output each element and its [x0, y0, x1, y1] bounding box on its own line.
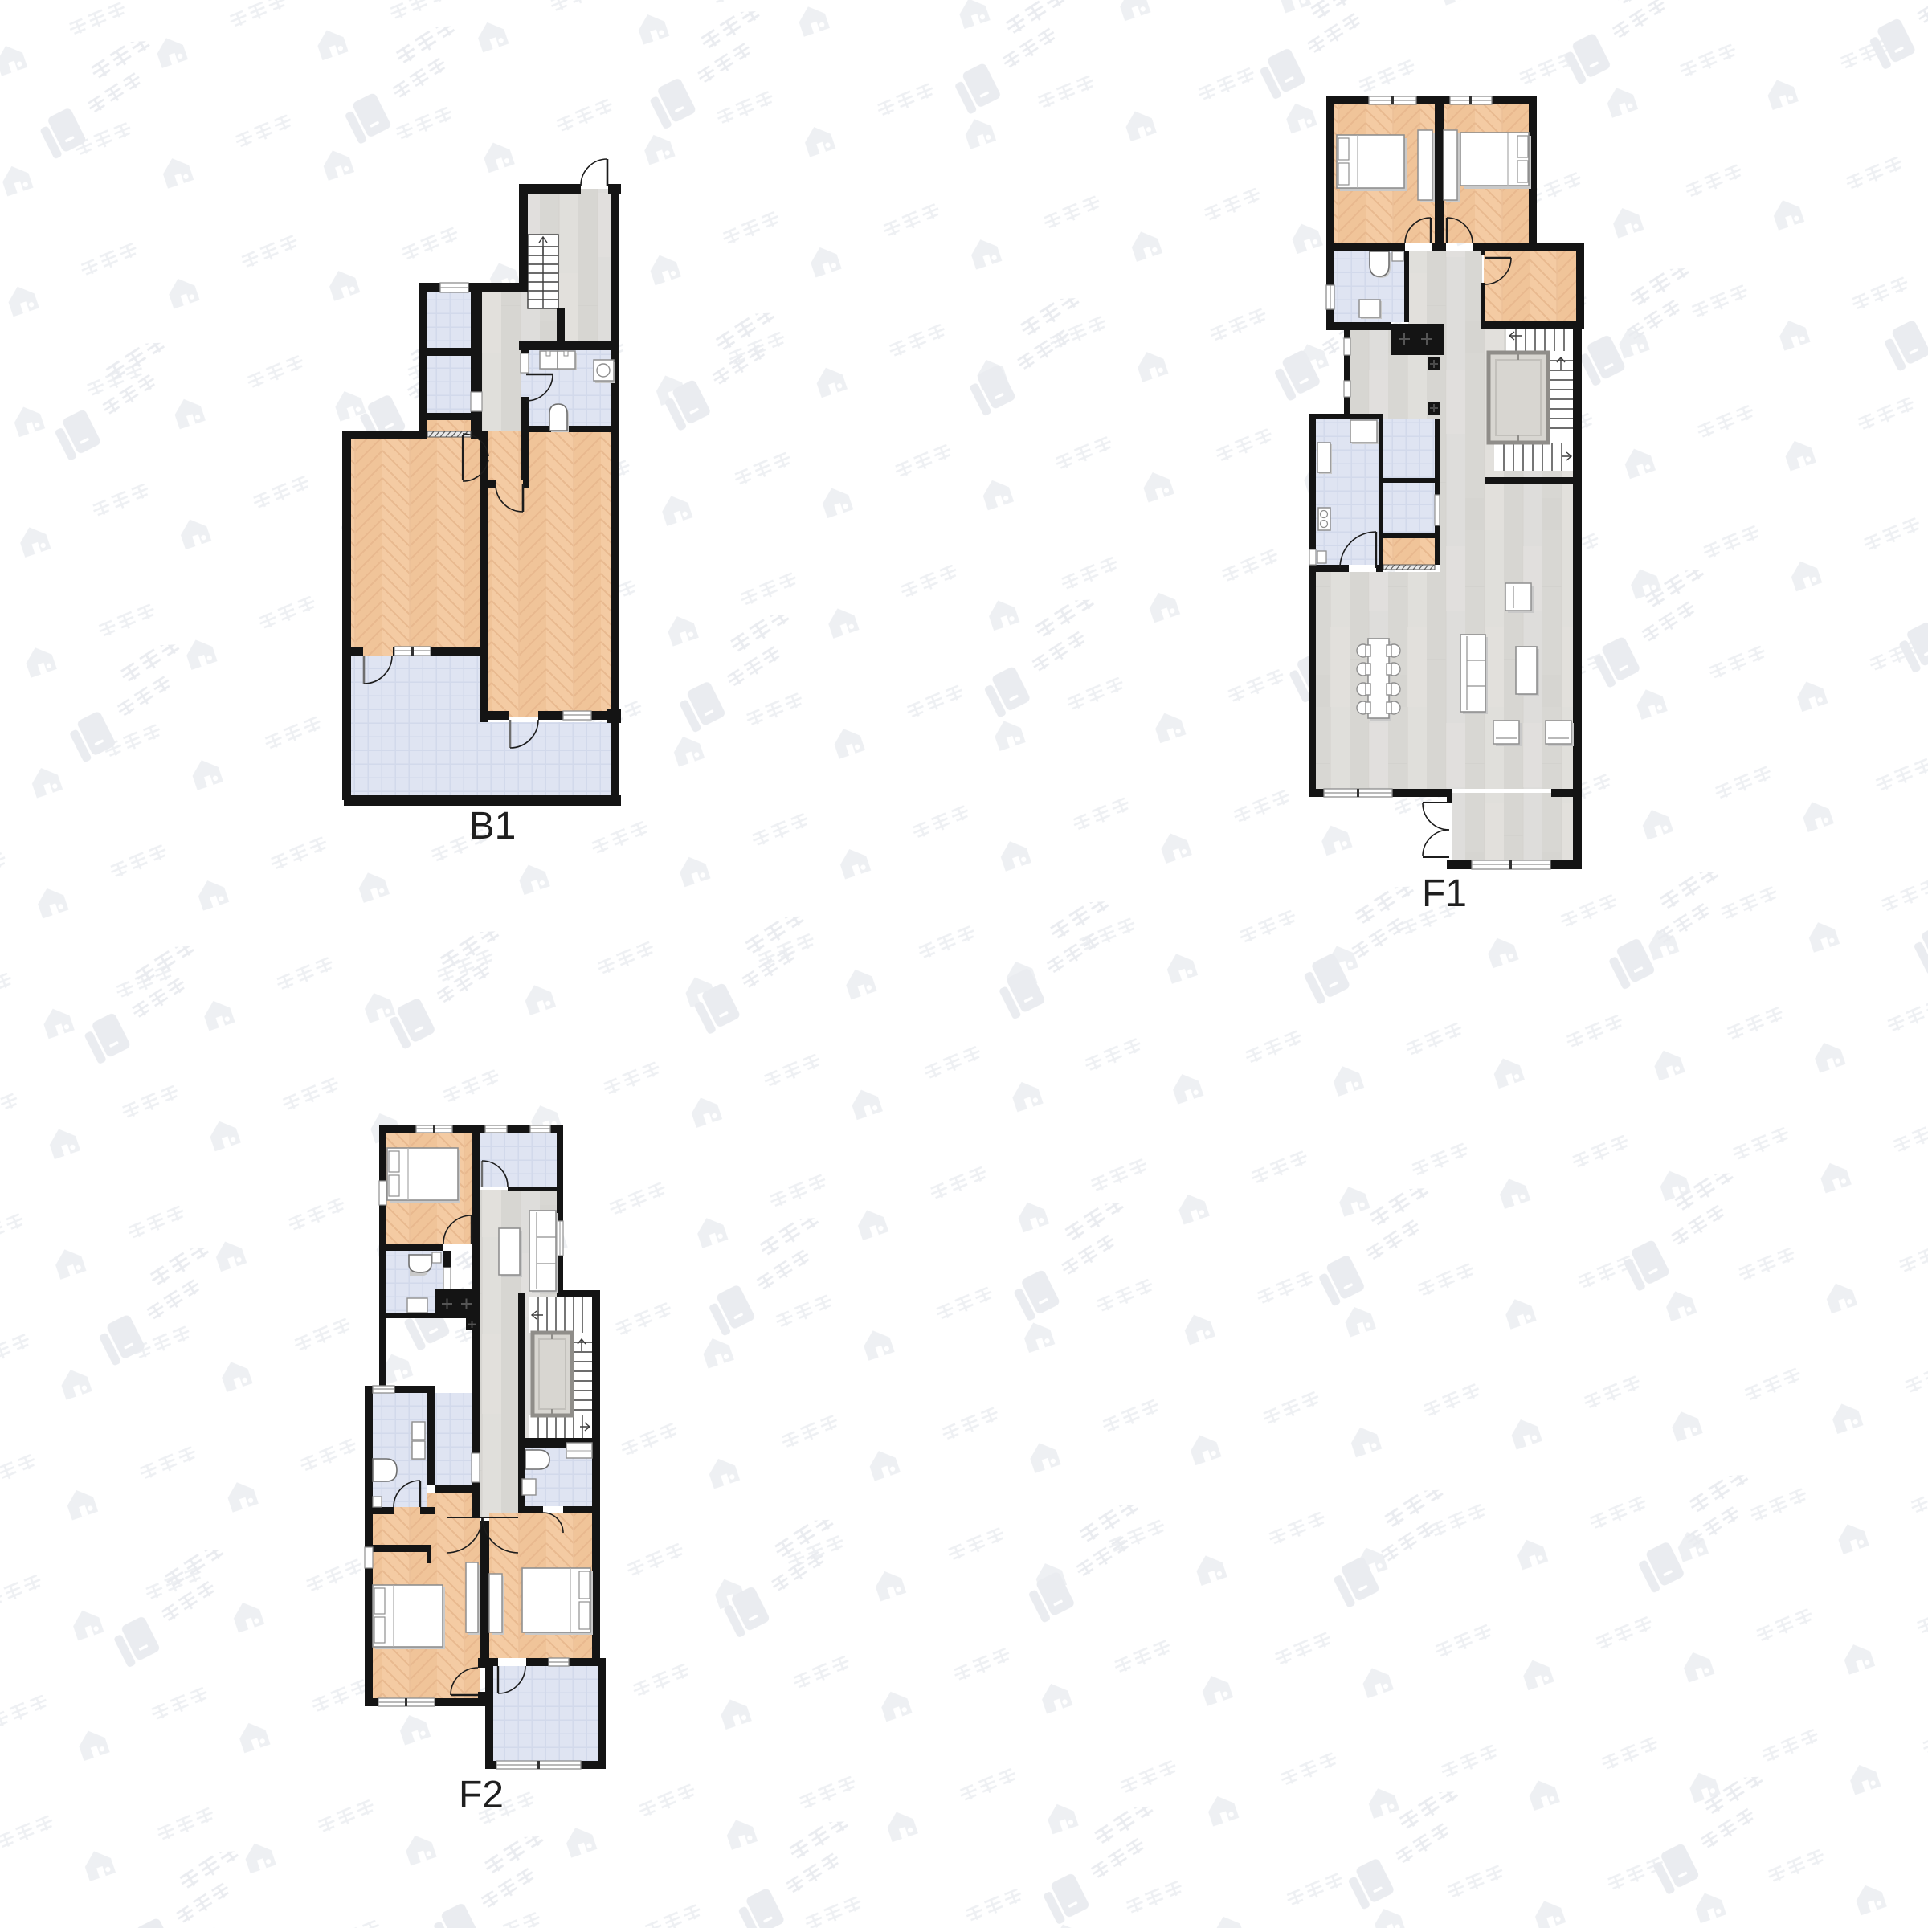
- svg-text:B1: B1: [469, 805, 517, 848]
- svg-text:F2: F2: [459, 1774, 504, 1816]
- svg-text:F1: F1: [1422, 872, 1467, 915]
